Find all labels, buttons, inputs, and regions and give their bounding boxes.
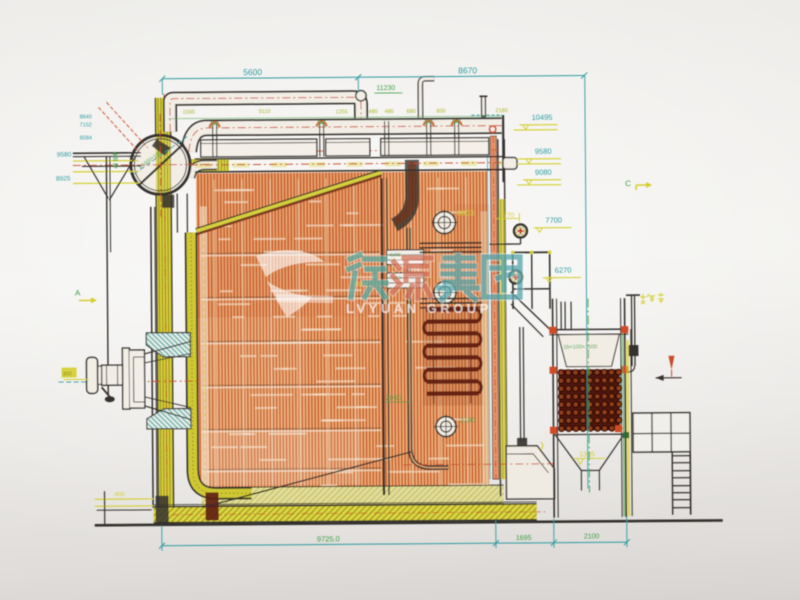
svg-text:8603: 8603 — [457, 208, 474, 217]
svg-text:9580: 9580 — [535, 147, 552, 156]
svg-text:1b×100×1500: 1b×100×1500 — [563, 344, 597, 350]
svg-text:8640: 8640 — [80, 114, 92, 120]
svg-text:680: 680 — [406, 109, 415, 115]
svg-text:9580: 9580 — [57, 151, 72, 158]
svg-text:5600: 5600 — [243, 67, 262, 77]
svg-text:C: C — [625, 179, 631, 188]
svg-text:770: 770 — [503, 212, 514, 219]
svg-text:7152: 7152 — [80, 122, 92, 128]
svg-text:6270: 6270 — [555, 266, 572, 275]
svg-text:2960: 2960 — [386, 395, 402, 402]
svg-text:2100: 2100 — [460, 417, 476, 424]
svg-text:10495: 10495 — [532, 113, 553, 122]
svg-text:8925: 8925 — [56, 176, 71, 183]
svg-text:2180: 2180 — [495, 108, 507, 114]
svg-text:1255: 1255 — [336, 109, 348, 115]
svg-text:7700: 7700 — [545, 216, 562, 225]
svg-text:8670: 8670 — [458, 65, 477, 75]
svg-text:480: 480 — [385, 109, 394, 115]
svg-text:A: A — [75, 288, 81, 297]
svg-text:1305: 1305 — [579, 451, 595, 458]
svg-text:9725.0: 9725.0 — [317, 534, 340, 543]
svg-text:600: 600 — [436, 109, 445, 115]
svg-text:3110: 3110 — [258, 109, 270, 115]
svg-text:6584: 6584 — [80, 135, 92, 141]
svg-text:11230: 11230 — [376, 85, 395, 92]
svg-text:LVYUAN GROUP: LVYUAN GROUP — [346, 301, 492, 316]
svg-text:400: 400 — [115, 492, 126, 498]
svg-text:1695: 1695 — [516, 535, 532, 542]
svg-text:2100: 2100 — [584, 533, 600, 540]
svg-text:480: 480 — [369, 109, 378, 115]
svg-text:9080: 9080 — [535, 168, 552, 177]
svg-text:1595: 1595 — [182, 110, 194, 116]
svg-text:300: 300 — [63, 372, 72, 378]
